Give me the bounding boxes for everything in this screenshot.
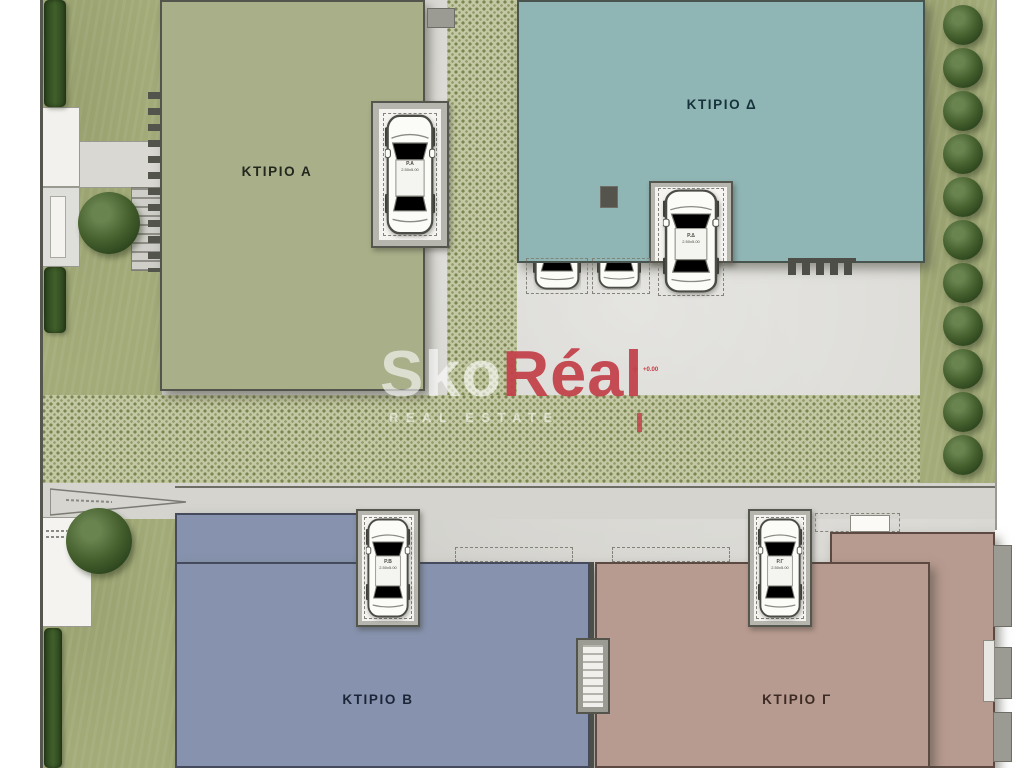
elevation-value: +0.00 — [643, 367, 658, 373]
building-g-label: ΚΤΙΡΙΟ Γ — [717, 692, 877, 707]
spot-dims: 2.50x5.00 — [379, 566, 397, 570]
building-b-label: ΚΤΙΡΙΟ Β — [298, 692, 458, 707]
tree-icon — [943, 91, 983, 131]
boundary-wall-left — [40, 0, 43, 768]
parking-spot-label: Ρ.Β 2.50x5.00 — [368, 560, 408, 570]
parked-car-partial — [533, 263, 581, 290]
tree-icon — [943, 435, 983, 475]
curb-line — [175, 486, 995, 488]
parking-spot-label: Ρ.Γ 2.50x5.00 — [760, 560, 800, 570]
building-a-label: ΚΤΙΡΙΟ Α — [197, 164, 357, 179]
car-top-view-icon — [533, 263, 581, 290]
rooftop-block — [427, 8, 455, 28]
parked-car-partial — [597, 263, 641, 290]
hedge-bottom-left — [44, 628, 62, 768]
tree-icon — [943, 349, 983, 389]
parking-spot-label: Ρ.Α 2.50x5.00 — [392, 162, 428, 172]
overhang-outline — [455, 547, 573, 562]
site-plan: ΚΤΙΡΙΟ Α Ρ.Α 2.50x5.00 ΚΤΙΡΙΟ Δ Ρ.Δ 2.50… — [0, 0, 1024, 768]
car-top-view-icon — [597, 263, 641, 289]
spot-dims: 2.50x5.00 — [401, 168, 419, 172]
annotation-smudge — [46, 530, 68, 532]
boundary-line-right — [995, 0, 997, 530]
tree-icon — [943, 5, 983, 45]
spot-dims: 2.50x5.00 — [682, 240, 700, 244]
access-ramp — [50, 487, 186, 517]
building-d-label: ΚΤΙΡΙΟ Δ — [642, 97, 802, 112]
paver-band-middle — [42, 395, 920, 483]
tree-icon — [66, 508, 132, 574]
building-d-step-teeth — [788, 263, 856, 275]
stair-core-steps — [583, 645, 603, 707]
tree-icon — [943, 263, 983, 303]
tree-icon — [943, 306, 983, 346]
hedge-top-left — [44, 0, 66, 107]
balcony — [993, 712, 1012, 762]
tree-icon — [943, 48, 983, 88]
tree-icon — [943, 177, 983, 217]
entrance-door-panel — [50, 196, 66, 258]
balcony — [993, 647, 1012, 699]
parking-spot-label: Ρ.Δ 2.50x5.00 — [670, 234, 712, 244]
tree-icon — [943, 134, 983, 174]
elevation-cross-icon: + — [632, 366, 638, 374]
balcony — [993, 545, 1012, 627]
building-a-edge-detail — [148, 92, 160, 272]
paver-strip-between-a-d — [447, 0, 517, 397]
skylight — [850, 515, 890, 532]
spot-dims: 2.50x5.00 — [771, 566, 789, 570]
annotation-smudge — [46, 536, 64, 538]
entrance-structure-upper — [42, 107, 80, 187]
tree-icon — [943, 220, 983, 260]
hedge-mid-left — [44, 267, 66, 333]
car-top-view-icon — [385, 114, 435, 235]
overhang-outline — [612, 547, 730, 562]
door-recess — [983, 640, 995, 702]
tree-icon — [943, 392, 983, 432]
rooftop-block — [600, 186, 618, 208]
tree-icon — [78, 192, 140, 254]
